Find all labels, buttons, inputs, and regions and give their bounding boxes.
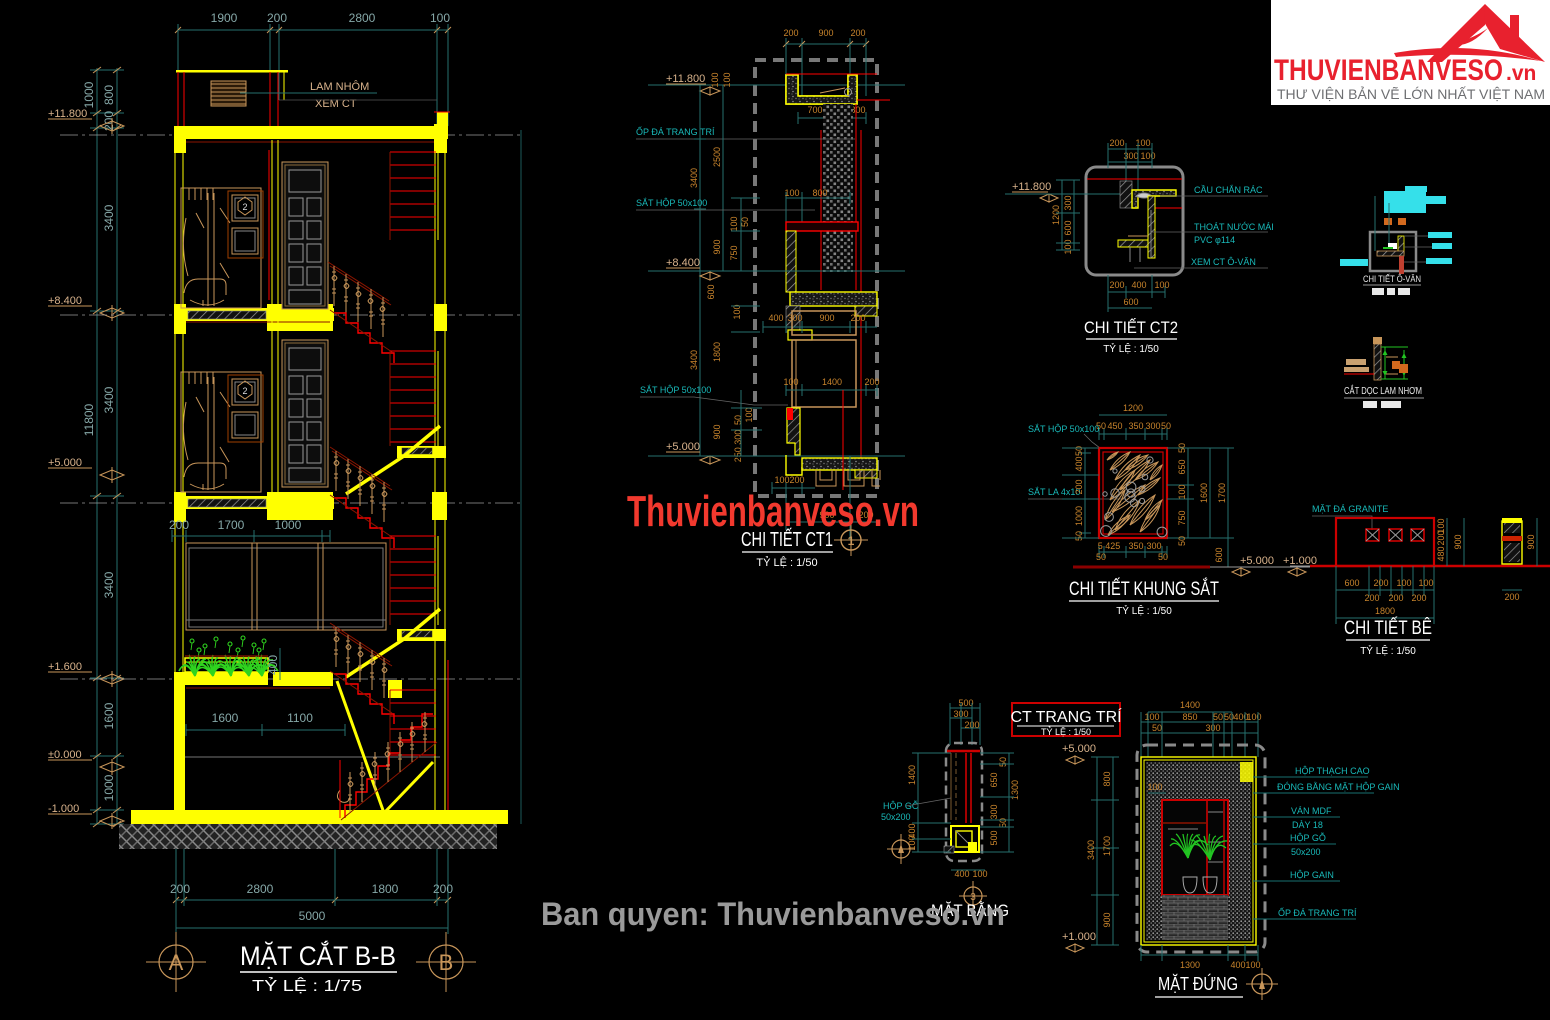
svg-text:100: 100 bbox=[1140, 151, 1155, 161]
svg-text:480: 480 bbox=[1436, 546, 1446, 561]
svg-text:1400: 1400 bbox=[907, 765, 917, 785]
svg-text:VÁN MDF: VÁN MDF bbox=[1291, 806, 1332, 816]
svg-text:850: 850 bbox=[1182, 712, 1197, 722]
svg-text:CHI TIẾT KHUNG SẮT: CHI TIẾT KHUNG SẮT bbox=[1069, 578, 1219, 600]
svg-text:50: 50 bbox=[998, 757, 1008, 767]
svg-text:1900: 1900 bbox=[211, 11, 238, 25]
svg-text:200: 200 bbox=[1373, 578, 1388, 588]
svg-text:CHI TIẾT CT2: CHI TIẾT CT2 bbox=[1084, 318, 1178, 337]
svg-text:3400: 3400 bbox=[1086, 840, 1096, 860]
svg-text:+11.800: +11.800 bbox=[1012, 181, 1051, 193]
svg-text:TỶ LỆ : 1/50: TỶ LỆ : 1/50 bbox=[1116, 604, 1172, 617]
svg-text:350: 350 bbox=[1128, 421, 1143, 431]
svg-text:11800: 11800 bbox=[82, 403, 96, 436]
svg-text:1100: 1100 bbox=[287, 711, 313, 725]
svg-text:100: 100 bbox=[1245, 960, 1260, 970]
svg-text:-1.000: -1.000 bbox=[48, 803, 79, 815]
svg-text:200: 200 bbox=[850, 28, 865, 38]
svg-text:3400: 3400 bbox=[689, 350, 699, 370]
svg-text:200: 200 bbox=[1109, 280, 1124, 290]
svg-text:300: 300 bbox=[989, 804, 999, 819]
svg-text:+5.000: +5.000 bbox=[666, 441, 700, 453]
svg-text:TỶ LỆ : 1/50: TỶ LỆ : 1/50 bbox=[1041, 726, 1091, 737]
svg-text:1800: 1800 bbox=[712, 342, 722, 362]
svg-text:50: 50 bbox=[1096, 552, 1106, 562]
svg-text:1700: 1700 bbox=[1102, 836, 1112, 856]
svg-text:TỶ LỆ : 1/50: TỶ LỆ : 1/50 bbox=[1360, 644, 1416, 657]
svg-text:+11.800: +11.800 bbox=[48, 108, 87, 120]
svg-text:MẶT ĐÁ GRANITE: MẶT ĐÁ GRANITE bbox=[1312, 504, 1388, 514]
svg-text:100: 100 bbox=[1246, 712, 1261, 722]
svg-text:300: 300 bbox=[1063, 195, 1073, 210]
svg-text:100: 100 bbox=[907, 835, 917, 850]
svg-text:300: 300 bbox=[787, 313, 802, 323]
svg-text:CHI TIẾT BÊ: CHI TIẾT BÊ bbox=[1344, 617, 1432, 639]
svg-text:ỐP ĐÁ TRANG TRÍ: ỐP ĐÁ TRANG TRÍ bbox=[636, 126, 715, 137]
svg-text:ỐP ĐÁ TRANG TRÍ: ỐP ĐÁ TRANG TRÍ bbox=[1278, 907, 1357, 918]
svg-text:200: 200 bbox=[1411, 593, 1426, 603]
svg-text:200: 200 bbox=[850, 313, 865, 323]
svg-text:CẦU CHẮN RÁC: CẦU CHẮN RÁC bbox=[1194, 185, 1263, 195]
svg-text:PVC φ114: PVC φ114 bbox=[1194, 235, 1235, 245]
svg-text:50x200: 50x200 bbox=[1291, 847, 1321, 857]
svg-text:ĐÓNG BẰNG MẶT HỘP GAIN: ĐÓNG BẰNG MẶT HỘP GAIN bbox=[1277, 782, 1400, 792]
svg-text:800: 800 bbox=[102, 85, 116, 105]
svg-text:5 425: 5 425 bbox=[1098, 541, 1121, 551]
svg-text:400: 400 bbox=[954, 869, 969, 879]
svg-text:700: 700 bbox=[807, 105, 822, 115]
svg-text:Ban quyen: Thuvienbanveso.vn: Ban quyen: Thuvienbanveso.vn bbox=[541, 896, 1005, 932]
svg-text:1800: 1800 bbox=[1375, 606, 1395, 616]
svg-text:200: 200 bbox=[1504, 592, 1519, 602]
svg-text:3400: 3400 bbox=[689, 168, 699, 188]
svg-text:350: 350 bbox=[1128, 541, 1143, 551]
svg-text:200: 200 bbox=[1109, 138, 1124, 148]
svg-text:200: 200 bbox=[170, 882, 190, 896]
svg-text:1000: 1000 bbox=[102, 774, 116, 801]
svg-text:800: 800 bbox=[812, 188, 827, 198]
svg-text:50x200: 50x200 bbox=[881, 812, 911, 822]
svg-text:1700: 1700 bbox=[1217, 483, 1227, 503]
svg-text:100: 100 bbox=[1418, 578, 1433, 588]
svg-text:HỘP GỖ: HỘP GỖ bbox=[883, 800, 919, 811]
svg-text:200: 200 bbox=[789, 475, 804, 485]
svg-text:5000: 5000 bbox=[299, 909, 326, 923]
svg-text:750: 750 bbox=[1177, 510, 1187, 525]
svg-text:XEM CT Ô-VĂN: XEM CT Ô-VĂN bbox=[1191, 257, 1256, 267]
svg-text:100: 100 bbox=[710, 72, 720, 87]
svg-text:50: 50 bbox=[1074, 446, 1084, 456]
svg-text:2800: 2800 bbox=[349, 11, 376, 25]
svg-text:3400: 3400 bbox=[102, 571, 116, 598]
svg-text:MẶT ĐỨNG: MẶT ĐỨNG bbox=[1158, 973, 1238, 994]
svg-text:1: 1 bbox=[848, 534, 855, 548]
svg-text:+5.000: +5.000 bbox=[1240, 555, 1274, 567]
svg-text:1000: 1000 bbox=[82, 81, 96, 108]
svg-text:100: 100 bbox=[744, 407, 754, 422]
svg-text:100: 100 bbox=[1154, 280, 1169, 290]
svg-text:900: 900 bbox=[1526, 534, 1536, 549]
svg-text:100: 100 bbox=[784, 188, 799, 198]
svg-text:900: 900 bbox=[818, 28, 833, 38]
svg-text:900: 900 bbox=[1102, 912, 1112, 927]
svg-text:HỘP GAIN: HỘP GAIN bbox=[1290, 870, 1334, 880]
svg-text:400: 400 bbox=[1074, 456, 1084, 471]
svg-text:400: 400 bbox=[1230, 960, 1245, 970]
svg-text:100: 100 bbox=[783, 377, 798, 387]
svg-text:SẮT HỘP 50x100: SẮT HỘP 50x100 bbox=[640, 385, 711, 395]
svg-text:A: A bbox=[169, 950, 184, 975]
svg-text:1000: 1000 bbox=[1074, 506, 1084, 526]
svg-text:CẮT DỌC LAM NHƠM: CẮT DỌC LAM NHƠM bbox=[1344, 384, 1422, 397]
svg-text:200: 200 bbox=[1436, 530, 1446, 545]
svg-text:500: 500 bbox=[989, 830, 999, 845]
svg-text:100: 100 bbox=[1144, 712, 1159, 722]
svg-text:200: 200 bbox=[169, 518, 189, 532]
svg-text:1800: 1800 bbox=[372, 882, 399, 896]
svg-text:900: 900 bbox=[712, 239, 722, 254]
svg-text:100: 100 bbox=[732, 304, 742, 319]
svg-text:Thuvienbanveso.vn: Thuvienbanveso.vn bbox=[627, 487, 919, 536]
svg-text:HỘP GỖ: HỘP GỖ bbox=[1290, 832, 1326, 843]
svg-text:300: 300 bbox=[1146, 541, 1161, 551]
svg-text:3400: 3400 bbox=[102, 386, 116, 413]
svg-text:100: 100 bbox=[1147, 782, 1162, 792]
svg-text:50: 50 bbox=[1177, 443, 1187, 453]
svg-text:3400: 3400 bbox=[102, 204, 116, 231]
svg-text:600: 600 bbox=[1063, 220, 1073, 235]
svg-text:+8.400: +8.400 bbox=[666, 257, 700, 269]
svg-text:+1.000: +1.000 bbox=[1062, 931, 1096, 943]
svg-text:2: 2 bbox=[242, 202, 247, 212]
svg-text:200: 200 bbox=[1364, 593, 1379, 603]
svg-text:TỶ LỆ : 1/75: TỶ LỆ : 1/75 bbox=[252, 976, 362, 995]
svg-text:400: 400 bbox=[1131, 280, 1146, 290]
svg-text:THƯ VIỆN BẢN VẼ LỚN NHẤT VIỆT: THƯ VIỆN BẢN VẼ LỚN NHẤT VIỆT NAM bbox=[1277, 87, 1545, 102]
svg-text:TỶ LỆ : 1/50: TỶ LỆ : 1/50 bbox=[1103, 342, 1159, 355]
svg-text:200: 200 bbox=[1074, 479, 1084, 494]
svg-text:SẮT HỘP 50x100: SẮT HỘP 50x100 bbox=[636, 198, 707, 208]
svg-text:HỘP THẠCH CAO: HỘP THẠCH CAO bbox=[1295, 766, 1370, 776]
svg-text:CHI TIẾT Ô-VĂN: CHI TIẾT Ô-VĂN bbox=[1363, 274, 1421, 285]
svg-text:200: 200 bbox=[783, 28, 798, 38]
svg-text:1700: 1700 bbox=[218, 518, 245, 532]
svg-text:1600: 1600 bbox=[1199, 483, 1209, 503]
svg-text:200: 200 bbox=[1388, 593, 1403, 603]
svg-text:2: 2 bbox=[242, 386, 247, 396]
svg-text:100: 100 bbox=[430, 11, 450, 25]
svg-text:B: B bbox=[439, 950, 454, 975]
svg-text:1000: 1000 bbox=[275, 518, 302, 532]
svg-text:600: 600 bbox=[1344, 578, 1359, 588]
svg-text:THOÁT NƯỚC MÁI: THOÁT NƯỚC MÁI bbox=[1194, 222, 1274, 232]
svg-text:1300: 1300 bbox=[1180, 960, 1200, 970]
svg-text:±0.000: ±0.000 bbox=[48, 749, 82, 761]
svg-text:800: 800 bbox=[1102, 771, 1112, 786]
svg-text:2800: 2800 bbox=[247, 882, 274, 896]
svg-text:CT TRANG TRÍ: CT TRANG TRÍ bbox=[1010, 707, 1122, 726]
svg-text:300: 300 bbox=[1145, 421, 1160, 431]
svg-text:THUVIENBANVESO: THUVIENBANVESO bbox=[1274, 54, 1503, 87]
svg-text:100: 100 bbox=[1063, 239, 1073, 254]
svg-text:100: 100 bbox=[972, 869, 987, 879]
svg-text:200: 200 bbox=[864, 377, 879, 387]
svg-text:200: 200 bbox=[433, 882, 453, 896]
svg-text:1200: 1200 bbox=[1051, 205, 1061, 225]
svg-text:650: 650 bbox=[989, 772, 999, 787]
svg-text:50: 50 bbox=[1177, 536, 1187, 546]
svg-text:SẮT HỘP 50x100: SẮT HỘP 50x100 bbox=[1028, 424, 1099, 434]
svg-text:50: 50 bbox=[1074, 531, 1084, 541]
svg-text:1200: 1200 bbox=[1123, 403, 1143, 413]
svg-text:400: 400 bbox=[266, 655, 280, 675]
svg-text:TỶ LỆ : 1/50: TỶ LỆ : 1/50 bbox=[756, 556, 817, 569]
svg-text:900: 900 bbox=[712, 424, 722, 439]
svg-text:+11.800: +11.800 bbox=[666, 73, 705, 85]
svg-text:50: 50 bbox=[1158, 552, 1168, 562]
svg-text:.vn: .vn bbox=[1506, 62, 1536, 85]
svg-text:SẮT LA 4x10: SẮT LA 4x10 bbox=[1028, 487, 1080, 497]
svg-text:2500: 2500 bbox=[712, 147, 722, 167]
svg-text:+8.400: +8.400 bbox=[48, 295, 82, 307]
svg-text:1600: 1600 bbox=[102, 702, 116, 729]
svg-text:+5.000: +5.000 bbox=[1062, 743, 1096, 755]
svg-text:400: 400 bbox=[768, 313, 783, 323]
svg-text:600: 600 bbox=[1214, 547, 1224, 562]
svg-text:100: 100 bbox=[774, 475, 789, 485]
svg-text:1400: 1400 bbox=[822, 377, 842, 387]
svg-text:1400: 1400 bbox=[1180, 700, 1200, 710]
svg-text:650: 650 bbox=[1177, 459, 1187, 474]
svg-text:600: 600 bbox=[706, 284, 716, 299]
svg-text:+1.600: +1.600 bbox=[48, 661, 82, 673]
svg-text:50: 50 bbox=[1161, 421, 1171, 431]
svg-text:+5.000: +5.000 bbox=[48, 457, 82, 469]
svg-text:MẶT CẮT B-B: MẶT CẮT B-B bbox=[240, 940, 396, 971]
svg-text:900: 900 bbox=[819, 313, 834, 323]
svg-text:450: 450 bbox=[1107, 421, 1122, 431]
svg-text:50: 50 bbox=[1213, 712, 1223, 722]
svg-text:LAM NHÔM: LAM NHÔM bbox=[310, 80, 369, 93]
svg-text:1600: 1600 bbox=[212, 711, 239, 725]
svg-text:50: 50 bbox=[1152, 723, 1162, 733]
svg-text:100: 100 bbox=[1396, 578, 1411, 588]
svg-text:900: 900 bbox=[1453, 534, 1463, 549]
svg-text:100: 100 bbox=[1177, 484, 1187, 499]
svg-text:100: 100 bbox=[729, 216, 739, 231]
svg-text:DÀY 18: DÀY 18 bbox=[1292, 820, 1323, 830]
svg-text:600: 600 bbox=[1123, 297, 1138, 307]
svg-text:200: 200 bbox=[267, 11, 287, 25]
svg-text:750: 750 bbox=[729, 245, 739, 260]
